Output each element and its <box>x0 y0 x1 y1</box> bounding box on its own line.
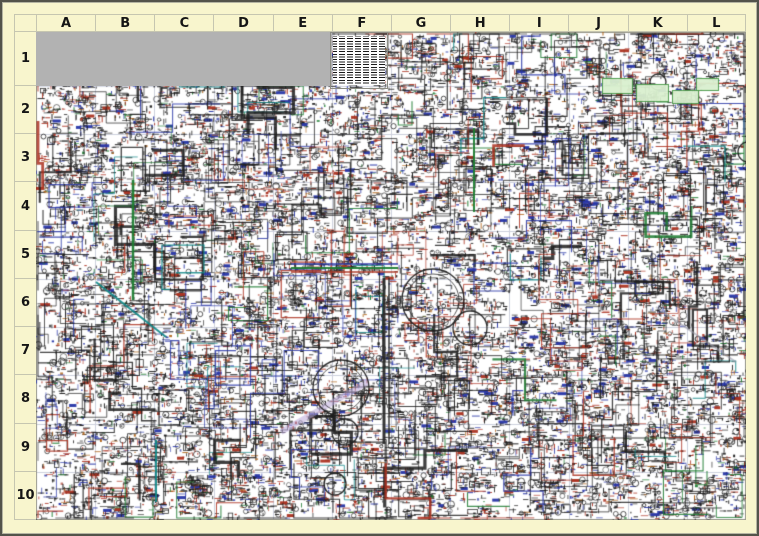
row-header-6: 6 <box>15 279 36 327</box>
row-header-band: 1 2 3 4 5 6 7 8 9 10 <box>14 32 36 520</box>
blank-placeholder-box <box>36 32 332 86</box>
row-header-9: 9 <box>15 424 36 472</box>
row-header-8: 8 <box>15 375 36 423</box>
grid-corner-cell <box>14 15 36 31</box>
pathway-map-canvas[interactable] <box>36 32 746 520</box>
column-header-a: A <box>36 15 95 31</box>
column-header-j: J <box>568 15 627 31</box>
column-header-c: C <box>154 15 213 31</box>
column-header-g: G <box>391 15 450 31</box>
column-header-d: D <box>213 15 272 31</box>
column-header-l: L <box>687 15 746 31</box>
row-header-3: 3 <box>15 134 36 182</box>
row-header-1: 1 <box>15 32 36 86</box>
column-header-band: A B C D E F G H I J K L <box>14 14 746 32</box>
row-header-10: 10 <box>15 472 36 520</box>
column-header-k: K <box>628 15 687 31</box>
row-header-2: 2 <box>15 86 36 134</box>
row-header-7: 7 <box>15 327 36 375</box>
pathway-map[interactable] <box>36 32 746 520</box>
row-header-5: 5 <box>15 231 36 279</box>
intro-text-block <box>330 32 388 89</box>
column-header-i: I <box>509 15 568 31</box>
column-header-b: B <box>95 15 154 31</box>
row-header-4: 4 <box>15 182 36 230</box>
column-header-e: E <box>273 15 332 31</box>
poster-frame: A B C D E F G H I J K L 1 2 3 4 5 6 7 8 … <box>0 0 759 536</box>
column-header-f: F <box>332 15 391 31</box>
column-header-h: H <box>450 15 509 31</box>
